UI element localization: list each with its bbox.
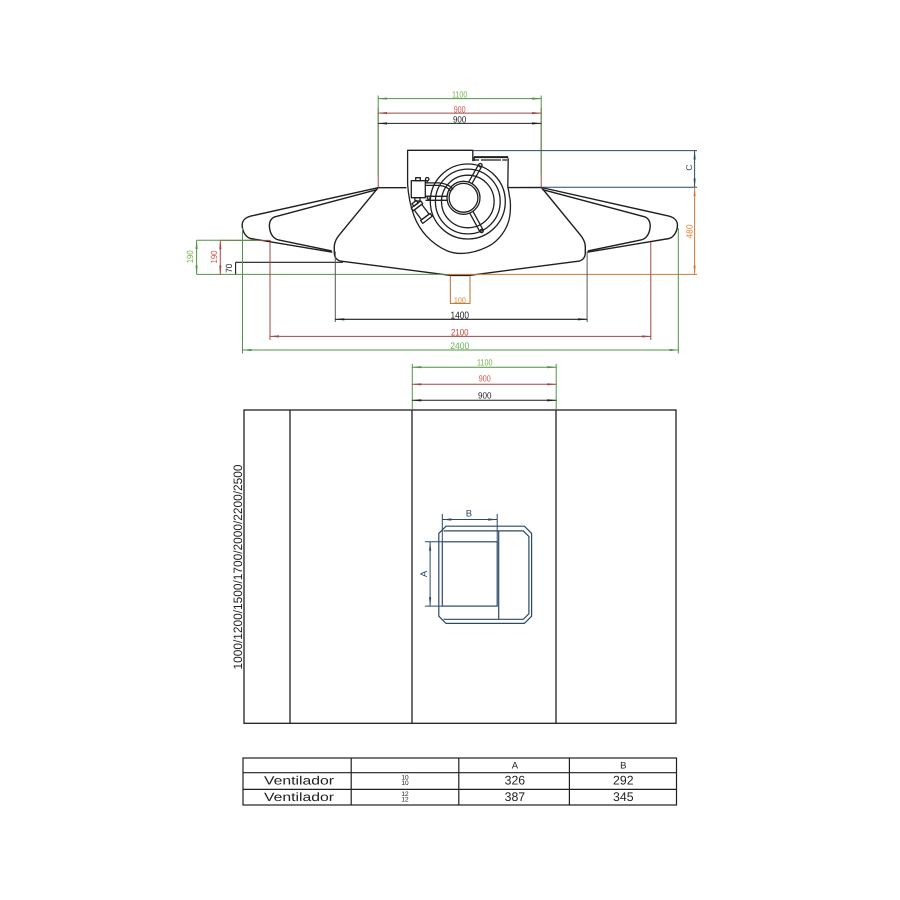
svg-text:C: C [684, 164, 694, 170]
svg-text:900: 900 [454, 104, 466, 114]
svg-text:1100: 1100 [452, 90, 468, 100]
svg-text:2100: 2100 [451, 328, 469, 339]
svg-text:326: 326 [505, 773, 526, 787]
svg-text:900: 900 [478, 390, 492, 400]
svg-text:B: B [620, 761, 626, 772]
svg-text:Ventilador: Ventilador [264, 773, 334, 787]
svg-text:190: 190 [185, 250, 195, 263]
svg-text:387: 387 [505, 790, 526, 804]
svg-text:1400: 1400 [451, 310, 470, 321]
svg-text:900: 900 [479, 373, 491, 383]
svg-text:Ventilador: Ventilador [264, 790, 334, 804]
svg-text:12: 12 [401, 796, 409, 803]
svg-text:B: B [466, 509, 472, 520]
svg-text:480: 480 [685, 225, 695, 239]
svg-text:A: A [419, 570, 430, 577]
svg-text:345: 345 [613, 790, 634, 804]
svg-text:2400: 2400 [450, 341, 469, 352]
svg-text:A: A [512, 761, 519, 772]
svg-text:1100: 1100 [477, 357, 493, 367]
svg-text:70: 70 [224, 264, 234, 273]
svg-text:10: 10 [401, 780, 409, 787]
svg-text:1000/1200/1500/1700/2000/2200/: 1000/1200/1500/1700/2000/2200/2500 [231, 464, 245, 669]
svg-text:292: 292 [613, 773, 634, 787]
svg-text:900: 900 [453, 115, 467, 125]
svg-text:190: 190 [209, 251, 219, 264]
svg-text:100: 100 [454, 296, 466, 305]
